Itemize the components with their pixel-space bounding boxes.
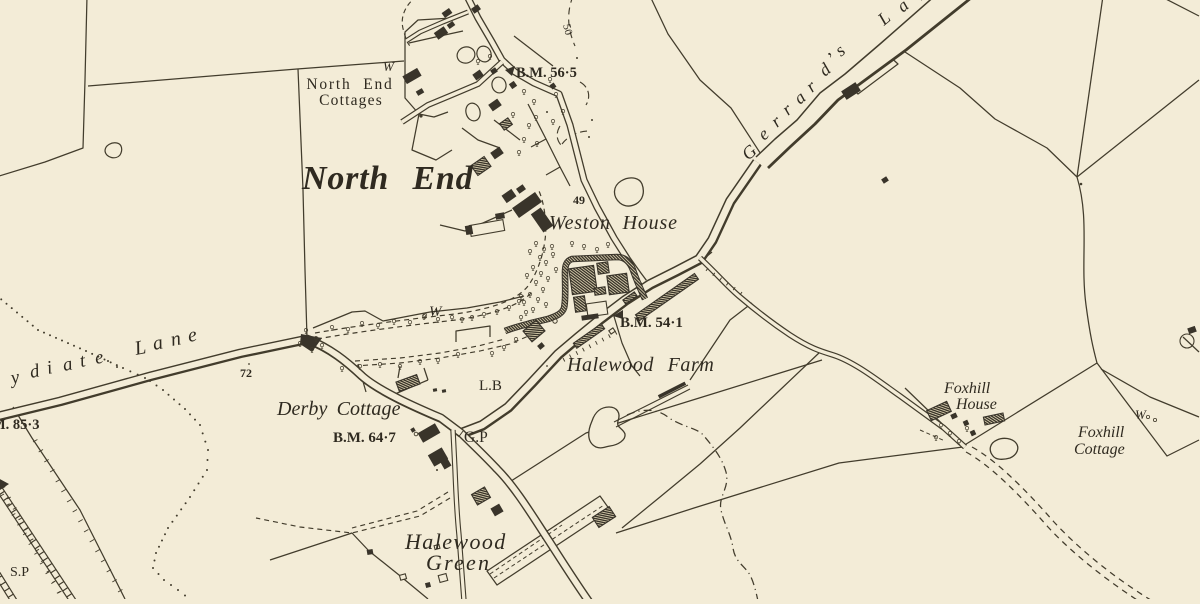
- svg-text:L.B: L.B: [479, 378, 502, 394]
- svg-text:W: W: [383, 59, 395, 74]
- svg-text:North End: North End: [306, 76, 393, 93]
- svg-text:B.M. 64·7: B.M. 64·7: [333, 430, 396, 446]
- svg-text:Cottages: Cottages: [319, 92, 383, 109]
- svg-text:Green: Green: [426, 550, 491, 575]
- svg-text:W: W: [429, 304, 443, 320]
- svg-text:Foxhill: Foxhill: [943, 380, 991, 397]
- svg-text:Weston House: Weston House: [549, 212, 678, 234]
- svg-text:M. 85·3: M. 85·3: [0, 417, 40, 433]
- svg-text:G.P: G.P: [464, 429, 488, 446]
- svg-text:B.M. 54·1: B.M. 54·1: [620, 315, 683, 331]
- svg-text:49: 49: [573, 193, 585, 207]
- svg-text:North End: North End: [301, 160, 474, 197]
- svg-text:S.P: S.P: [10, 565, 29, 580]
- svg-text:Derby Cottage: Derby Cottage: [276, 398, 401, 420]
- svg-text:Foxhill: Foxhill: [1077, 424, 1125, 441]
- svg-text:Cottage: Cottage: [1074, 441, 1125, 458]
- svg-text:72: 72: [240, 366, 252, 380]
- svg-text:House: House: [955, 396, 997, 413]
- svg-text:B.M. 56·5: B.M. 56·5: [516, 65, 577, 81]
- svg-text:W: W: [1135, 407, 1147, 422]
- svg-text:Halewood Farm: Halewood Farm: [566, 354, 714, 376]
